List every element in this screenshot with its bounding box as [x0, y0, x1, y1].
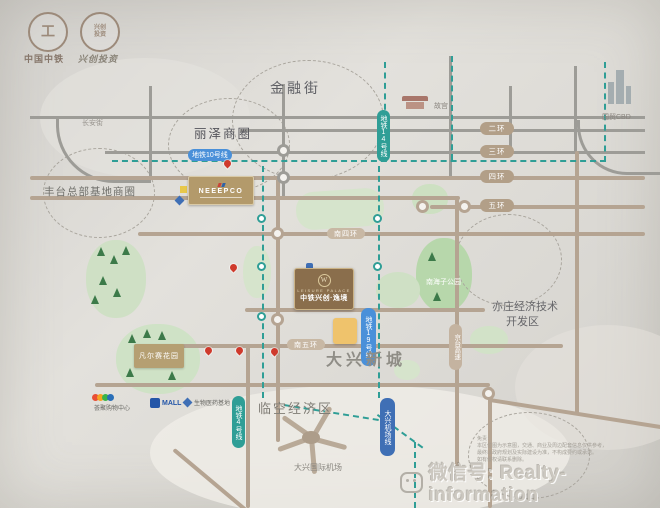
location-map: 二环 三环 四环 五环 南四环 南五环 京台高速 地铁10号线 地铁14号线 地… [0, 0, 660, 508]
disclaimer-line: 免责： [477, 436, 637, 443]
metro-station-dot [373, 262, 382, 271]
poi-pin-icon [229, 263, 239, 273]
park [86, 240, 146, 318]
road [138, 232, 645, 236]
yizhuang-label-line2: 开发区 [506, 313, 539, 329]
tree-icon [91, 295, 99, 304]
park [470, 326, 508, 354]
ring4-badge: 四环 [480, 170, 514, 183]
metro-line4-badge: 地铁4号线 [232, 396, 245, 448]
china-railway-logo: 工 [28, 12, 68, 52]
interchange [271, 313, 284, 326]
tree-icon [143, 329, 151, 338]
road [509, 86, 512, 154]
project-name-cn: 中铁兴创·逸境 [300, 294, 348, 305]
plaza-name: NEEEPCO [199, 188, 244, 195]
district-circle-yizhuang [455, 214, 562, 306]
road [30, 176, 645, 180]
wechat-id-text: 微信号: Realty-information [429, 458, 660, 507]
metro-station-dot [257, 262, 266, 271]
china-railway-emblem-icon: 工 [41, 24, 55, 39]
metro-dashed [451, 56, 453, 160]
road [246, 344, 250, 508]
tree-icon [99, 276, 107, 285]
gugong-label: 故宫 [434, 101, 448, 111]
metro-station-dot [257, 214, 266, 223]
biomedical-base-item: 生物医药基地 [184, 398, 230, 407]
xingchuang-logo: 兴创 投资 [80, 12, 120, 52]
road [95, 383, 490, 387]
park [376, 272, 420, 308]
metro-station-dot [257, 312, 266, 321]
livat-label: 荟聚购物中心 [94, 403, 150, 412]
mall-label: MALL [162, 400, 181, 407]
park [243, 246, 271, 298]
interchange [277, 144, 290, 157]
metro-station-dot [373, 214, 382, 223]
biomedical-logo-icon [183, 398, 193, 408]
gate-base [406, 102, 424, 109]
nanhaizi-park-label: 南海子公园 [426, 277, 461, 287]
interchange [277, 171, 290, 184]
disclaimer-line: 本区位图为示意图，交通、商业及周边配套信息仅供参考， [477, 443, 637, 450]
tree-icon [97, 247, 105, 256]
project-badge: W LEISURE PALACE 中铁兴创·逸境 [294, 268, 354, 310]
tree-icon [126, 368, 134, 377]
cbd-buildings-icon [606, 70, 634, 110]
interchange [458, 200, 471, 213]
ring2-badge: 二环 [480, 122, 514, 135]
seal-row: 兴创 [94, 25, 106, 31]
changanjie-label: 长安街 [82, 118, 103, 128]
tree-icon [433, 292, 441, 301]
plaza-logo-icon [218, 183, 225, 187]
biomedical-label: 生物医药基地 [194, 398, 230, 407]
ring3-badge: 三环 [480, 145, 514, 158]
metro-line10-dashed [112, 160, 606, 162]
tree-icon [168, 371, 176, 380]
mall-item: MALL [150, 398, 181, 408]
park [295, 187, 385, 231]
gold-plaza-landmark: NEEEPCO [188, 176, 254, 205]
road-curve [577, 120, 660, 175]
jingtai-expressway-label: 京台高速 [449, 324, 462, 370]
airport-icon [268, 414, 364, 466]
linkong-label: 临空经济区 [258, 398, 333, 417]
tree-icon [428, 252, 436, 261]
tree-icon [113, 288, 121, 297]
yellow-landmark-block [333, 318, 357, 344]
wechat-watermark: 微信号: Realty-information [400, 458, 660, 507]
interchange [271, 227, 284, 240]
china-railway-logo-text: 中国中铁 [24, 52, 64, 65]
south-ring5-label: 南五环 [287, 339, 325, 350]
interchange [482, 387, 495, 400]
metro-dashed [262, 166, 264, 398]
lize-label: 丽泽商圈 [194, 123, 252, 142]
road [575, 151, 579, 415]
tree-icon [158, 331, 166, 340]
road [574, 66, 577, 154]
interchange [416, 200, 429, 213]
metro-line14-badge: 地铁14号线 [377, 110, 390, 162]
daxing-airport-line-badge: 大兴机场线 [380, 398, 395, 456]
ring5-badge: 五环 [480, 199, 514, 212]
gate-roof [402, 96, 428, 101]
airport-label: 大兴国际机场 [294, 462, 342, 473]
divider [200, 197, 242, 198]
livat-logo-icon [94, 394, 150, 401]
cbd-label: 国贸CBD [602, 112, 631, 122]
yizhuang-label-line1: 亦庄经济技术 [492, 298, 558, 314]
daxing-newtown-label: 大兴新城 [326, 346, 406, 370]
disclaimer-line: 最终以政府规划及实际建设为准，不构成要约或承诺。 [477, 450, 637, 457]
gugong-gate-icon [402, 96, 428, 110]
xingchuang-seal-icon: 兴创 投资 [94, 25, 106, 38]
mall-logo-icon [150, 398, 160, 408]
tree-icon [122, 246, 130, 255]
road [105, 151, 645, 154]
tree-icon [128, 334, 136, 343]
wechat-icon [400, 472, 423, 493]
fengtai-hub-label: 丰台总部基地商圈 [44, 184, 136, 199]
xingchuang-logo-text: 兴创投资 [78, 52, 118, 65]
tree-icon [110, 255, 118, 264]
project-monogram-icon: W [318, 274, 331, 287]
seal-row: 投资 [94, 32, 106, 38]
jinrongjie-label: 金融街 [270, 78, 321, 98]
south-ring4-label: 南四环 [327, 228, 365, 239]
poi-marker-icon [180, 186, 187, 193]
versailles-landmark: 凡尔赛花园 [134, 344, 184, 368]
livat-mall-item: 荟聚购物中心 [94, 394, 150, 416]
